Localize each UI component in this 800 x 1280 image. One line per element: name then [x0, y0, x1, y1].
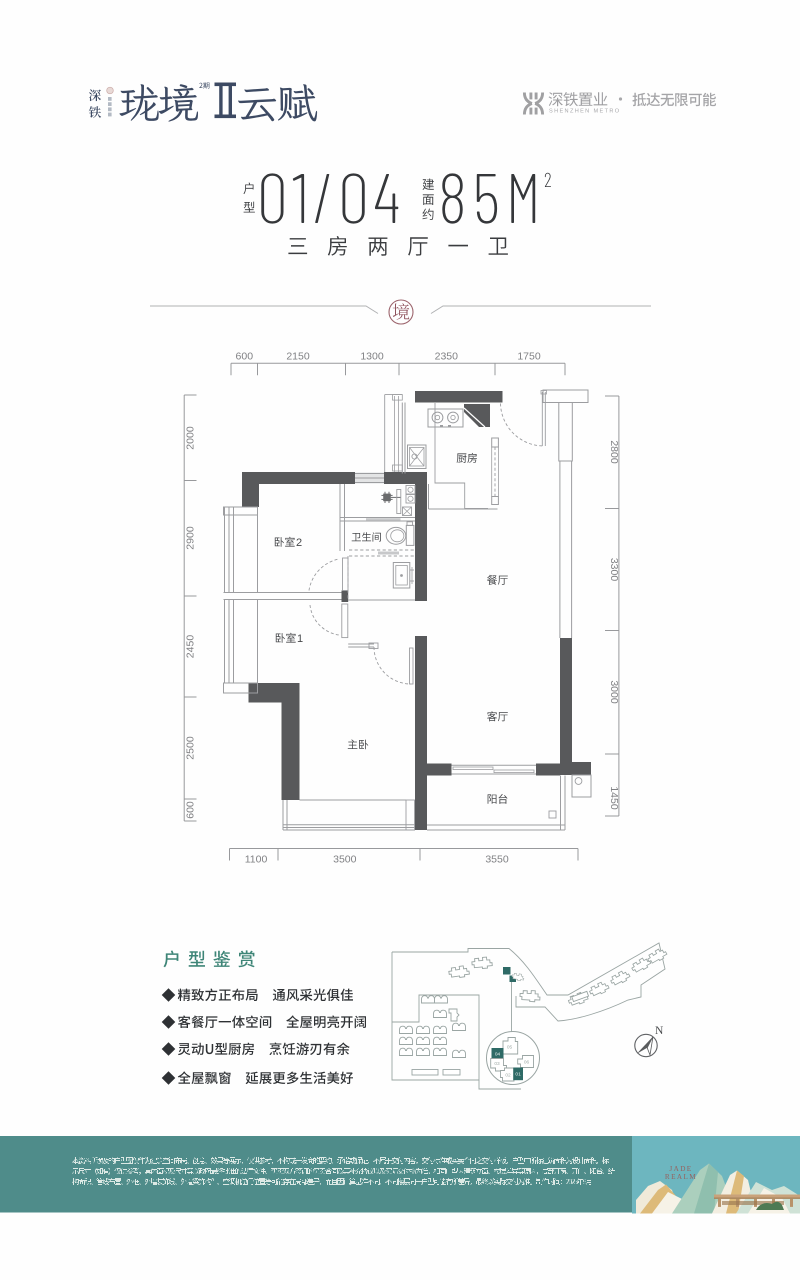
svg-text:600: 600 [185, 801, 197, 819]
svg-text:600: 600 [236, 351, 254, 363]
svg-text:2000: 2000 [185, 426, 197, 450]
svg-text:3300: 3300 [608, 558, 620, 582]
svg-text:05: 05 [507, 1045, 513, 1051]
svg-text:2350: 2350 [435, 351, 459, 363]
svg-text:1450: 1450 [608, 786, 620, 810]
svg-text:01: 01 [515, 1072, 521, 1078]
svg-text:2900: 2900 [185, 526, 197, 550]
svg-text:2500: 2500 [185, 736, 197, 760]
svg-text:REALM: REALM [665, 1173, 697, 1181]
svg-text:3500: 3500 [333, 854, 357, 866]
svg-text:1750: 1750 [517, 351, 541, 363]
svg-text:2150: 2150 [286, 351, 310, 363]
svg-text:JADE: JADE [669, 1165, 692, 1173]
svg-text:2: 2 [296, 537, 302, 549]
svg-text:06: 06 [524, 1060, 530, 1066]
svg-text:3550: 3550 [485, 854, 509, 866]
svg-text:2450: 2450 [185, 635, 197, 659]
svg-text:1300: 1300 [360, 351, 384, 363]
svg-text:2800: 2800 [608, 440, 620, 464]
svg-text:N: N [655, 1025, 664, 1037]
svg-text:03: 03 [494, 1061, 500, 1067]
svg-text:1: 1 [297, 633, 303, 645]
svg-text:04: 04 [495, 1051, 501, 1057]
svg-text:1100: 1100 [245, 854, 268, 866]
svg-text:3000: 3000 [608, 680, 620, 704]
svg-text:SHENZHEN METRO: SHENZHEN METRO [549, 109, 620, 115]
svg-text:02: 02 [505, 1073, 511, 1079]
